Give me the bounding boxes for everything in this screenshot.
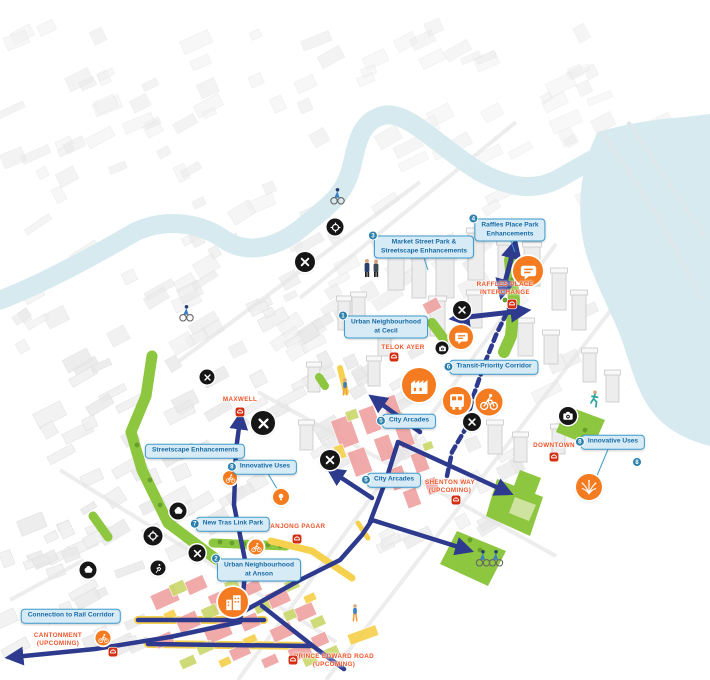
plan-callout: Urban Neighbourhood at Anson2 [217, 558, 301, 581]
callout-number-badge: 4 [468, 213, 478, 223]
fireworks-icon [576, 474, 602, 500]
crossed-utensils-icon [320, 450, 340, 470]
camera-icon [436, 342, 449, 355]
cyclist-icon [476, 389, 503, 416]
tree-canopy-icon [170, 503, 187, 520]
station-name-label: RAFFLES PLACE INTERCHANGE [477, 281, 534, 297]
crossed-utensils-icon [251, 411, 275, 435]
tree-canopy-icon [80, 562, 97, 579]
plan-callout: New Tras Link Park7 [196, 517, 270, 532]
station-name-label: MAXWELL [223, 396, 257, 404]
callout-label: Urban Neighbourhood at Cecil [344, 315, 428, 338]
crossed-utensils-icon [200, 370, 215, 385]
callout-number-badge: 1 [338, 310, 348, 320]
callout-number-badge: 8 [575, 437, 585, 447]
callout-label: Transit-Priority Corridor [449, 360, 538, 375]
plan-callout: City Arcades5 [367, 473, 421, 488]
camera-icon [559, 407, 577, 425]
callout-number-badge: 6 [443, 362, 453, 372]
crossed-utensils-icon [189, 545, 206, 562]
plan-callout: Transit-Priority Corridor6 [449, 360, 538, 375]
plan-callout: Urban Neighbourhood at Cecil1 [344, 315, 428, 338]
target-icon [327, 219, 344, 236]
lightbulb-icon [273, 489, 289, 505]
station-name-label: CANTONMENT (UPCOMING) [34, 632, 82, 648]
buildings-icon [218, 587, 248, 617]
businessmen-figure [361, 258, 383, 278]
callout-label: City Arcades [367, 473, 421, 488]
plan-callout: Innovative Uses8 [581, 435, 645, 450]
callout-number-badge: 3 [368, 230, 378, 240]
cbd-plan-map: Market Street Park & Streetscape Enhance… [0, 0, 710, 680]
pedestrian-figure [340, 378, 350, 396]
callout-label: Innovative Uses [233, 460, 297, 475]
plan-callout: Innovative Uses8 [233, 460, 297, 475]
mrt-station-icon [235, 407, 246, 418]
mrt-station-icon [108, 647, 119, 658]
mrt-station-icon [507, 299, 518, 310]
mrt-station-icon [288, 655, 299, 666]
callout-label: Market Street Park & Streetscape Enhance… [374, 235, 474, 258]
callout-label: Streetscape Enhancements [145, 444, 245, 459]
callout-label: Innovative Uses [581, 435, 645, 450]
callout-number-badge: 2 [211, 553, 221, 563]
runner-icon [151, 561, 166, 576]
runner-figure [587, 390, 601, 408]
plan-callout: Connection to Rail Corridor [21, 609, 121, 624]
callout-number-badge: 5 [376, 416, 386, 426]
cyclist-icon [249, 540, 264, 555]
target-icon [144, 527, 163, 546]
plan-callout: City Arcades5 [382, 414, 436, 429]
callout-label: Urban Neighbourhood at Anson [217, 558, 301, 581]
mrt-station-icon [549, 452, 560, 463]
callout-label: Connection to Rail Corridor [21, 609, 121, 624]
crossed-utensils-icon [453, 301, 471, 319]
station-name-label: DOWNTOWN [533, 442, 575, 450]
crossed-utensils-icon [463, 413, 481, 431]
callout-number-badge: 5 [361, 475, 371, 485]
shophouses-icon [402, 368, 436, 402]
crossed-utensils-icon [295, 252, 315, 272]
mrt-station-icon [292, 534, 303, 545]
station-name-label: TANJONG PAGAR [267, 523, 326, 531]
mrt-station-icon [451, 495, 462, 506]
callout-number-badge: 8 [227, 462, 237, 472]
speech-bubble-icon [449, 325, 473, 349]
cyclist-icon [96, 631, 111, 646]
mrt-station-icon [389, 352, 400, 363]
callout-label: Raffles Place Park Enhancements [474, 218, 545, 241]
pedestrian-figure [350, 604, 360, 622]
callout-label: City Arcades [382, 414, 436, 429]
callout-label: New Tras Link Park [196, 517, 270, 532]
plan-callout: Streetscape Enhancements [145, 444, 245, 459]
bus-icon [443, 387, 471, 415]
callout-number-badge: 7 [190, 519, 200, 529]
cyclist-pair-figure [474, 549, 504, 567]
plan-callout: Market Street Park & Streetscape Enhance… [374, 235, 474, 258]
cyclist-figure [178, 304, 195, 322]
station-name-label: SHENTON WAY (UPCOMING) [425, 479, 475, 495]
station-name-label: PRINCE EDWARD ROAD (UPCOMING) [294, 653, 374, 669]
plan-callout: Raffles Place Park Enhancements4 [474, 218, 545, 241]
floating-number-badge: 8 [632, 457, 642, 467]
map-base-art [0, 0, 710, 680]
cyclist-figure [329, 187, 346, 205]
